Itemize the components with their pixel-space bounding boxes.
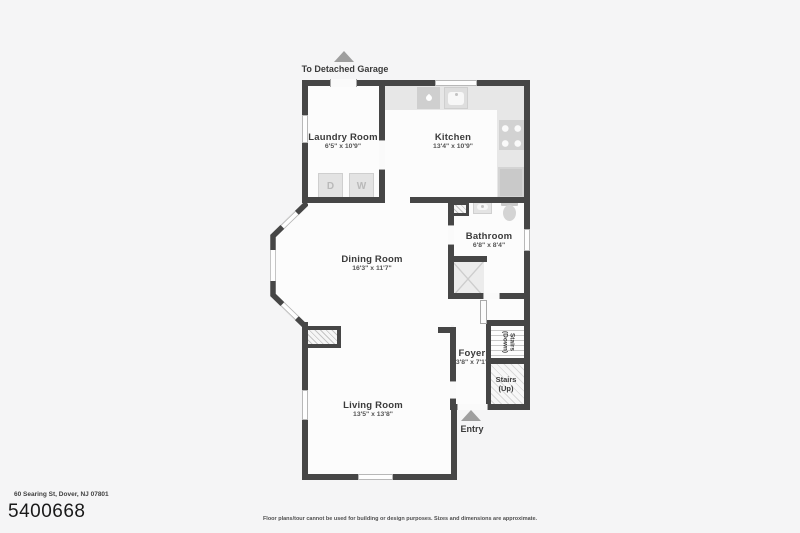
foyer-label: Foyer 3'8" x 7'1" (456, 348, 488, 368)
window-bathroom-right (524, 229, 530, 251)
wall-laundry-kitchen-upper (379, 80, 385, 140)
door-garage (330, 79, 357, 87)
wall-laundry-bottom (302, 197, 385, 203)
bay-window (263, 193, 308, 333)
bathroom-label: Bathroom 6'8" x 8'4" (466, 231, 512, 251)
door-bathroom (448, 225, 454, 245)
kitchen-name: Kitchen (433, 132, 473, 143)
garage-direction-arrow-icon (334, 51, 354, 62)
door-bathroom-hall (483, 293, 500, 299)
door-leaf-stairs (480, 300, 487, 324)
stairs-down-label: Stairs (Down) (501, 331, 516, 353)
door-living-foyer (450, 381, 456, 399)
window-kitchen-top (435, 80, 477, 86)
stairs-down-line1: Stairs (508, 331, 515, 353)
property-address: 60 Searing St, Dover, NJ 07801 (14, 491, 109, 498)
dining-room-name: Dining Room (341, 254, 402, 265)
laundry-room-label: Laundry Room 6'5" x 10'9" (308, 132, 377, 152)
refrigerator (498, 167, 524, 198)
wall-bathroom-left-upper (448, 203, 454, 225)
stairs-up-label: Stairs (Up) (496, 375, 517, 393)
stairs-up-line2: (Up) (496, 384, 517, 393)
door-laundry-kitchen (379, 140, 385, 170)
living-room-label: Living Room 13'5" x 13'8" (343, 400, 403, 420)
washer: W (349, 173, 374, 199)
wall-shower-top (448, 256, 487, 262)
stove (499, 120, 524, 150)
wall-laundry-kitchen-lower (379, 170, 385, 203)
water-drop-icon (424, 94, 432, 102)
foyer-name: Foyer (456, 348, 488, 359)
entry-arrow-icon (461, 410, 481, 421)
mls-number: 5400668 (8, 501, 85, 523)
disclaimer: Floor plans/tour cannot be used for buil… (263, 516, 537, 522)
living-room-name: Living Room (343, 400, 403, 411)
floor-plan: To Detached Garage Entry D W (0, 0, 800, 533)
dining-room-label: Dining Room 16'3" x 11'7" (341, 254, 402, 274)
window-living-left (302, 390, 308, 420)
laundry-room-name: Laundry Room (308, 132, 377, 143)
dining-room-dims: 16'3" x 11'7" (341, 265, 402, 274)
laundry-room-dims: 6'5" x 10'9" (308, 143, 377, 152)
shower-x-icon (452, 261, 484, 297)
wall-kitchen-bottom (410, 197, 530, 203)
entry-label: Entry (460, 424, 483, 434)
window-laundry-left (302, 115, 308, 143)
fireplace (303, 326, 341, 348)
kitchen-label: Kitchen 13'4" x 10'9" (433, 132, 473, 152)
kitchen-sink (444, 87, 468, 109)
kitchen-dims: 13'4" x 10'9" (433, 143, 473, 152)
dryer-label: D (327, 181, 334, 192)
wall-living-right (451, 404, 457, 480)
shower (452, 261, 484, 297)
dishwasher (417, 87, 440, 109)
foyer-dims: 3'8" x 7'1" (456, 359, 488, 368)
bathroom-dims: 6'8" x 8'4" (466, 242, 512, 251)
stairs-up-line1: Stairs (496, 375, 517, 384)
stairs-down-line2: (Down) (501, 331, 508, 353)
garage-label: To Detached Garage (302, 64, 389, 74)
dryer: D (318, 173, 343, 199)
wall-stairs-top (486, 320, 530, 326)
wall-stairs-divider (486, 358, 530, 364)
living-room-dims: 13'5" x 13'8" (343, 411, 403, 420)
toilet-bowl (503, 205, 516, 221)
window-living-bottom (358, 474, 393, 480)
washer-label: W (357, 181, 366, 192)
wall-bathroom-left-lower (448, 245, 454, 299)
bathroom-name: Bathroom (466, 231, 512, 242)
